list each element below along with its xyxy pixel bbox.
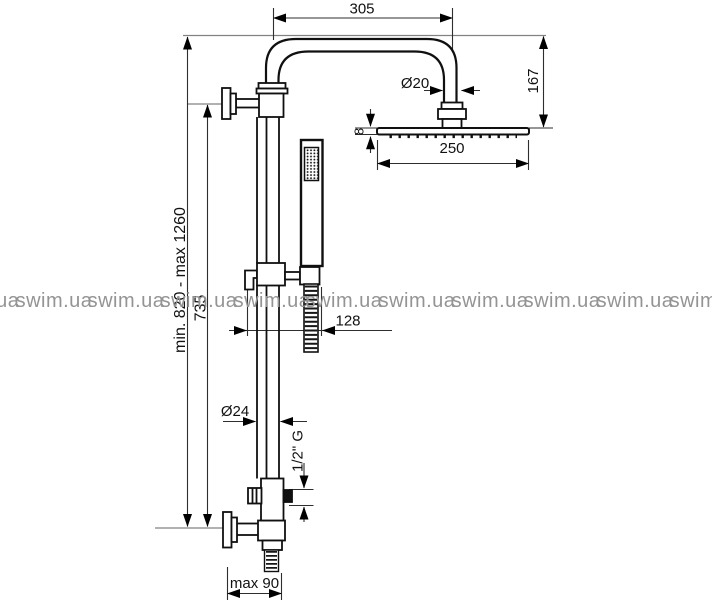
outlet-nut [263,541,283,551]
diverter-knob-hub [231,94,237,115]
rain-shower-head [377,128,529,137]
wall-distance-label: max 90 [230,575,279,592]
hose-offset-label: 128 [335,313,360,330]
diverter-knob-plate [222,88,231,119]
head-width-label: 250 [439,140,464,157]
watermark-text: swim.ua [88,290,165,312]
hand-shower-holder [300,267,320,285]
slider-block [257,263,285,286]
watermark-text: swim.ua [161,290,238,312]
watermark-text: swim.ua [452,290,529,312]
wall-outlet-thread [265,550,279,572]
watermark-row: swim.ua swim.ua swim.ua swim.ua swim.ua … [0,290,712,312]
valve-knob-hub [232,518,238,543]
holder-arm [285,272,300,280]
watermark-text: swim.ua [379,290,456,312]
watermark-text: swim.ua [16,290,93,312]
watermark-text: swim.ua [234,290,311,312]
hose-outlet-fitting [284,490,293,502]
top-diverter [222,83,288,119]
valve-knob-plate [223,512,232,548]
valve-upper-body [261,479,284,521]
diverter-knob-stem [236,99,261,108]
outlet-thread-label: 1/2" G [290,430,307,472]
bottom-valve [223,479,292,572]
watermark-text: swim.ua [597,290,674,312]
valve-body [258,521,285,541]
shower-arm [266,39,457,103]
watermark-text: swim.ua [306,290,383,312]
watermark-text: swim.ua [670,290,712,312]
head-plate [377,128,529,135]
slider-bracket [245,271,257,290]
column-pipe-diameter-label: Ø24 [221,403,249,420]
rain-head-connector [438,103,466,129]
head-thickness-label: 8 [352,128,367,135]
shower-column-diagram: 305 Ø20 167 8 250 min. 820 - max 1260 73… [0,0,712,600]
watermark-text: swim.ua [524,290,601,312]
tee-body [259,94,284,118]
hand-shower [301,140,323,266]
arm-pipe-diameter-label: Ø20 [401,75,429,92]
column-height-range-label: min. 820 - max 1260 [172,207,189,353]
hand-shower-spray-face [305,148,319,181]
reference-lines [155,36,546,529]
arm-length-label: 305 [349,1,374,18]
technical-drawing-page: 305 Ø20 167 8 250 min. 820 - max 1260 73… [0,0,712,600]
knurled-screw [248,488,262,504]
head-drop-label: 167 [525,68,542,93]
